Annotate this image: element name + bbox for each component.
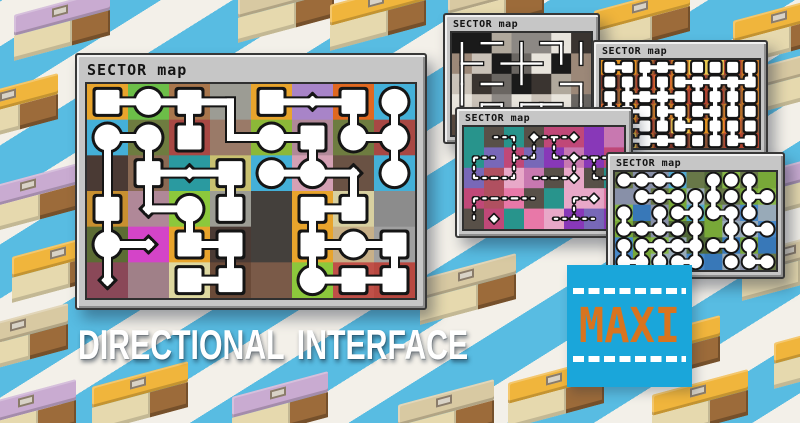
window-titlebar[interactable]: SECTOR map	[81, 58, 421, 82]
crate	[0, 73, 58, 145]
window-titlebar[interactable]: SECTOR map	[598, 45, 762, 58]
window-titlebar[interactable]: SECTOR map	[612, 157, 779, 170]
maxi-logo: MAXI	[567, 265, 692, 387]
sector-map-canvas[interactable]	[462, 125, 626, 231]
window-title: SECTOR map	[616, 158, 681, 169]
sector-map-canvas[interactable]	[613, 170, 778, 272]
scene: SECTOR map SECTOR map SECTOR map SECTOR …	[0, 0, 800, 423]
dashed-line-bottom	[573, 356, 686, 362]
crate	[0, 379, 76, 423]
sector-map-window-main[interactable]: SECTOR map	[75, 53, 427, 310]
crate	[398, 379, 494, 423]
crate	[774, 317, 800, 389]
window-title: SECTOR map	[602, 46, 667, 57]
crate	[238, 0, 334, 43]
crate	[0, 163, 78, 235]
sector-map-canvas[interactable]	[85, 82, 417, 300]
sector-map-window-green[interactable]: SECTOR map	[606, 152, 785, 279]
crate	[14, 0, 110, 61]
dashed-line-top	[573, 288, 686, 294]
crate	[420, 253, 516, 325]
maxi-logo-text: MAXI	[567, 297, 692, 353]
window-titlebar[interactable]: SECTOR map	[449, 18, 594, 31]
crate	[0, 303, 68, 375]
window-title: SECTOR map	[465, 113, 530, 124]
crate	[232, 371, 328, 423]
window-title: SECTOR map	[87, 61, 187, 79]
crate	[330, 0, 426, 51]
window-title: SECTOR map	[453, 19, 518, 30]
crate	[92, 361, 188, 423]
tagline: DIRECTIONAL INTERFACE	[78, 324, 468, 366]
window-titlebar[interactable]: SECTOR map	[461, 112, 627, 125]
